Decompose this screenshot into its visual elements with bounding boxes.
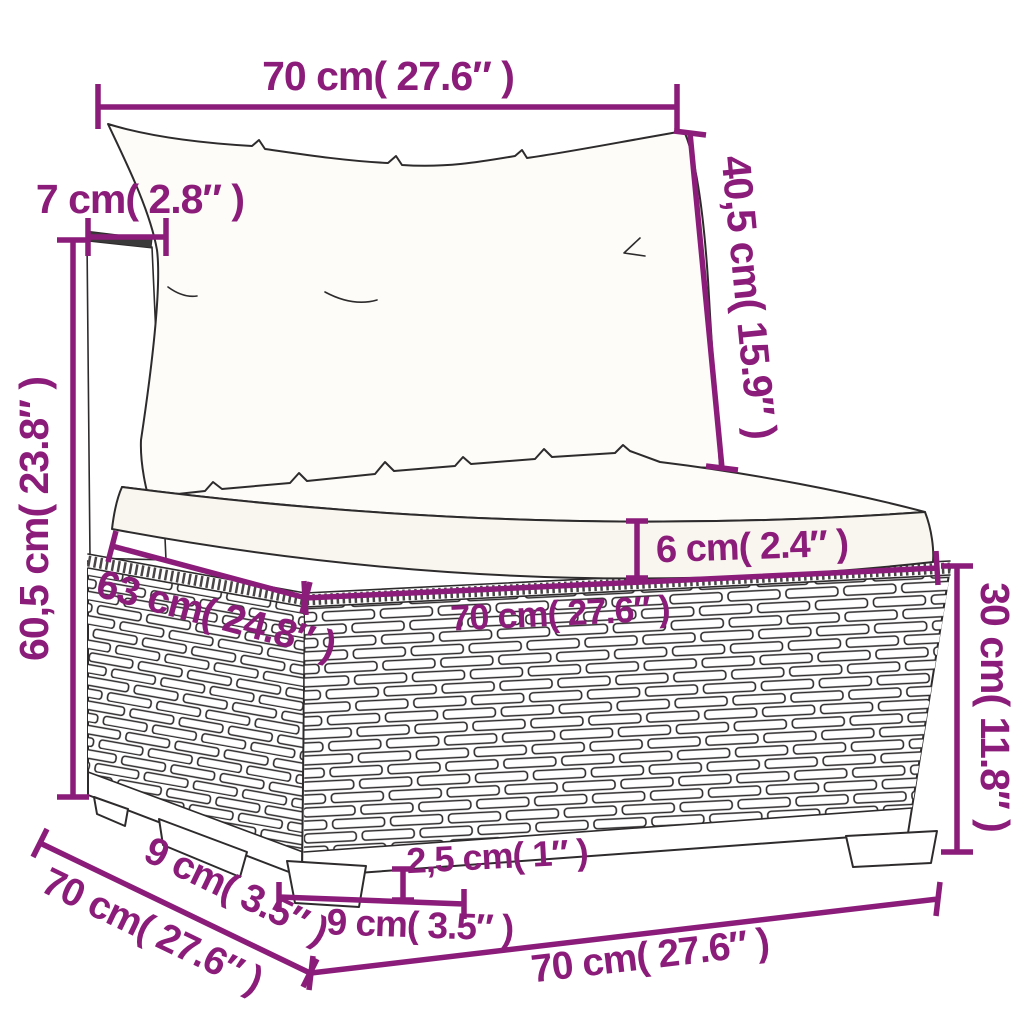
dim-back-width-label: 70 cm( 27.6″ ) — [262, 53, 514, 99]
dim-panel-thickness-label: 7 cm( 2.8″ ) — [36, 176, 244, 222]
dim-total-height-label: 60,5 cm( 23.8″ ) — [11, 377, 57, 661]
dim-back-width: 70 cm( 27.6″ ) — [98, 53, 677, 129]
product-dimension-diagram: 70 cm( 27.6″ ) 7 cm( 2.8″ ) 60,5 cm( 23.… — [0, 0, 1024, 1024]
foot-front-right — [846, 831, 937, 867]
dim-seat-cushion-thickness-label: 6 cm( 2.4″ ) — [655, 523, 848, 572]
dim-foot-height: 2,5 cm( 1″ ) — [392, 831, 589, 900]
dim-backrest-height-label: 40,5 cm( 15.9″ ) — [712, 153, 785, 440]
sofa-drawing — [86, 124, 950, 907]
dim-total-height: 60,5 cm( 23.8″ ) — [11, 240, 89, 797]
diagram-canvas: 70 cm( 27.6″ ) 7 cm( 2.8″ ) 60,5 cm( 23.… — [0, 0, 1024, 1024]
dim-foot-height-label: 2,5 cm( 1″ ) — [405, 831, 588, 881]
dim-base-height: 30 cm( 11.8″ ) — [941, 566, 1018, 852]
dim-base-height-label: 30 cm( 11.8″ ) — [972, 582, 1018, 832]
dim-foot-width-label: 9 cm( 3.5″ ) — [326, 901, 514, 948]
